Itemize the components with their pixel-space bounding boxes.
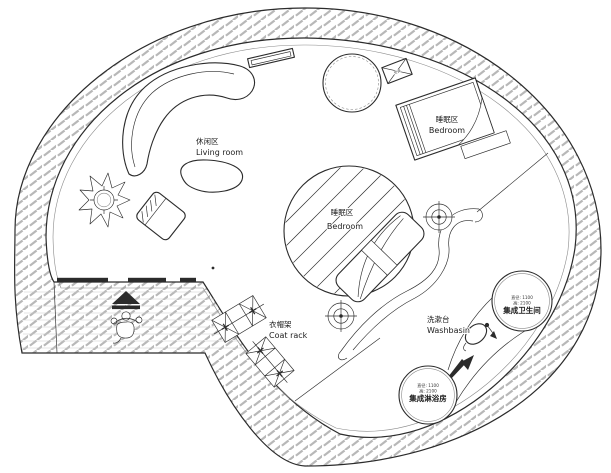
shower-pod-spec1: 直径: 1100 [417,382,439,388]
floor-plan-drawing: 空调 [0,0,611,473]
floor-plan: 空调 [0,0,611,473]
living-room-label-zh: 休闲区 [196,136,219,146]
column-marker-icon [325,300,357,332]
bathroom-pod-label: 集成卫生间 [502,305,541,315]
plant-icon [79,173,130,227]
column-marker-icon [423,201,455,233]
ac-unit: 空调 [382,58,412,83]
dot-marker [212,267,215,270]
partition-line-upper [477,153,548,212]
living-room-label-en: Living room [196,148,243,157]
armchair [135,190,187,241]
bathroom-pod-spec1: 直径: 1100 [511,294,533,300]
coffee-table [181,160,243,192]
partition-line-lower [295,338,380,401]
coat-rack-label-zh: 衣帽架 [269,319,292,329]
coat-rack-label-en: Coat rack [269,331,308,340]
bedroom-upper-label-en: Bedroom [429,126,465,135]
shower-pod-label: 集成淋浴房 [408,393,447,403]
bedroom-center-label-zh: 睡眠区 [331,208,354,217]
washbasin-label-en: Washbasin [427,326,470,335]
bedroom-upper-label-zh: 睡眠区 [436,115,459,124]
washbasin-label-zh: 洗漱台 [427,314,450,324]
sink-icon [461,320,497,351]
wall-shelf [248,48,295,67]
round-table [323,54,381,112]
bedroom-center-label-en: Bedroom [327,222,363,231]
